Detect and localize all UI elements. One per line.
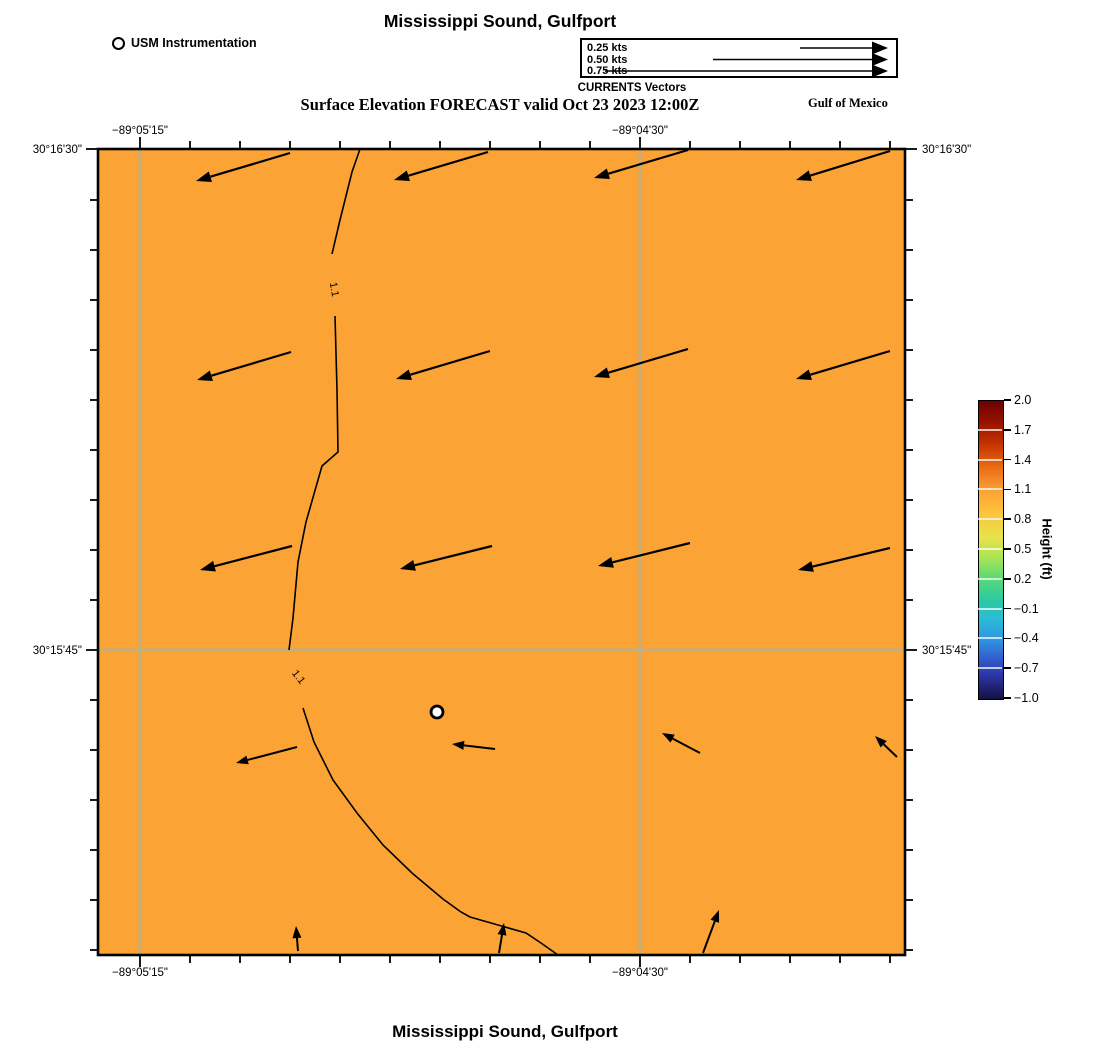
colorbar-tick-label: 1.7 — [1014, 423, 1031, 437]
contour-level-label: 1.1 — [327, 281, 341, 298]
colorbar-tick-label: 1.4 — [1014, 453, 1031, 467]
colorbar-level-line — [978, 608, 1002, 610]
colorbar-tick — [1004, 548, 1011, 550]
colorbar-axis-label: Height (ft) — [1040, 518, 1055, 579]
colorbar-level-line — [978, 667, 1002, 669]
y-axis-label-right: 30°15'45" — [922, 645, 971, 657]
y-axis-label-left: 30°15'45" — [33, 645, 82, 657]
colorbar-tick-label: 0.5 — [1014, 542, 1031, 556]
colorbar-level-line — [978, 429, 1002, 431]
bottom-title: Mississippi Sound, Gulfport — [0, 1022, 1010, 1042]
colorbar-tick — [1004, 608, 1011, 610]
colorbar-tick — [1004, 459, 1011, 461]
colorbar-tick-label: −0.4 — [1014, 631, 1039, 645]
colorbar-level-line — [978, 637, 1002, 639]
colorbar-level-line — [978, 548, 1002, 550]
colorbar-tick-label: 1.1 — [1014, 482, 1031, 496]
colorbar-tick — [1004, 667, 1011, 669]
colorbar-level-line — [978, 459, 1002, 461]
colorbar-tick — [1004, 399, 1011, 401]
colorbar-tick — [1004, 697, 1011, 699]
y-axis-label-right: 30°16'30" — [922, 144, 971, 156]
x-axis-label-top: −89°05'15" — [112, 125, 168, 137]
y-axis-label-left: 30°16'30" — [33, 144, 82, 156]
colorbar-level-line — [978, 518, 1002, 520]
colorbar-tick — [1004, 489, 1011, 491]
colorbar-tick-label: 0.2 — [1014, 572, 1031, 586]
colorbar-tick-label: −0.1 — [1014, 602, 1039, 616]
colorbar-tick — [1004, 518, 1011, 520]
colorbar — [978, 400, 1004, 700]
x-axis-label-bottom: −89°04'30" — [612, 967, 668, 979]
colorbar-tick — [1004, 578, 1011, 580]
x-axis-label-bottom: −89°05'15" — [112, 967, 168, 979]
colorbar-tick — [1004, 429, 1011, 431]
colorbar-level-line — [978, 578, 1002, 580]
colorbar-tick-label: 0.8 — [1014, 512, 1031, 526]
colorbar-level-line — [978, 488, 1002, 490]
map-plot: 1.11.1−89°05'15"−89°05'15"−89°04'30"−89°… — [0, 0, 1100, 1050]
current-vector — [297, 938, 298, 951]
colorbar-tick-label: −1.0 — [1014, 691, 1039, 705]
map-water-surface — [98, 149, 905, 955]
colorbar-tick — [1004, 638, 1011, 640]
forecast-figure: Mississippi Sound, Gulfport USM Instrume… — [0, 0, 1100, 1050]
usm-station-marker — [431, 706, 443, 718]
x-axis-label-top: −89°04'30" — [612, 125, 668, 137]
colorbar-tick-label: 2.0 — [1014, 393, 1031, 407]
colorbar-tick-label: −0.7 — [1014, 661, 1039, 675]
